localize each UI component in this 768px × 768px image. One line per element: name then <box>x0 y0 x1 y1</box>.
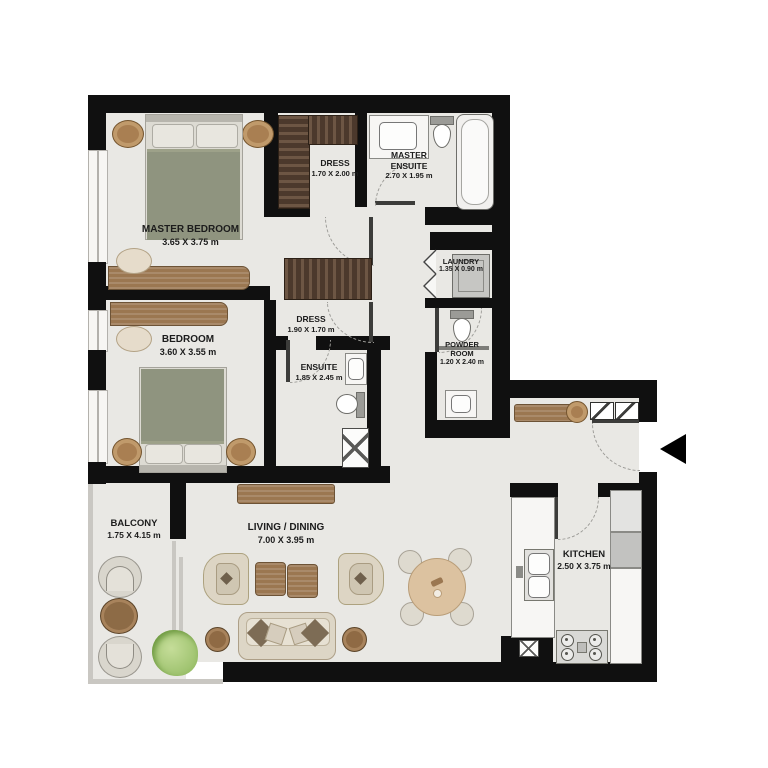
stove-knob <box>577 642 587 653</box>
wall <box>88 95 510 113</box>
balcony-glass-bottom <box>88 679 223 684</box>
nightstand <box>112 438 142 466</box>
side-table <box>342 627 367 652</box>
nightstand <box>112 120 144 148</box>
chair-back <box>106 566 134 591</box>
plant <box>152 630 198 676</box>
nightstand <box>242 120 274 148</box>
nightstand <box>226 438 256 466</box>
shower <box>342 428 369 468</box>
wall <box>264 300 276 466</box>
tv-console <box>237 484 335 504</box>
sofa <box>238 612 336 660</box>
room-label-master-ensuite: MASTER ENSUITE 2.70 X 1.95 m <box>372 150 446 181</box>
armchair <box>338 553 384 605</box>
table-decor <box>433 589 442 598</box>
hatched-cabinet <box>590 402 614 420</box>
room-label-living-dining: LIVING / DINING 7.00 X 3.95 m <box>226 522 346 546</box>
bathtub <box>456 114 494 210</box>
room-label-master-bedroom: MASTER BEDROOM 3.65 X 3.75 m <box>118 224 263 248</box>
chair-back <box>106 644 134 669</box>
fridge <box>610 490 642 532</box>
wall <box>223 662 657 682</box>
room-label-dress-2: DRESS 1.90 X 1.70 m <box>278 314 344 334</box>
balcony-chair <box>98 556 142 598</box>
window-bedroom-upper <box>88 310 108 352</box>
bathtub-inner <box>461 119 489 205</box>
balcony-glass-left <box>88 483 93 684</box>
wardrobe <box>308 115 358 145</box>
desk-chair <box>116 248 152 274</box>
hatched-cabinet <box>615 402 639 420</box>
wall <box>639 398 657 422</box>
wardrobe <box>284 258 372 300</box>
pillow <box>184 444 222 464</box>
bed-master <box>145 114 243 240</box>
armchair <box>203 553 249 605</box>
room-label-dress-1: DRESS 1.70 X 2.00 m <box>300 158 370 178</box>
balcony-chair <box>98 636 142 678</box>
wall <box>88 350 106 390</box>
floor-plan: MASTER BEDROOM 3.65 X 3.75 m DRESS 1.70 … <box>0 0 768 768</box>
desk <box>110 302 228 326</box>
room-label-kitchen: KITCHEN 2.50 X 3.75 m <box>549 549 619 572</box>
round-decor <box>566 401 588 423</box>
sink-basin <box>528 553 550 575</box>
wall <box>492 95 510 225</box>
wall <box>492 225 510 438</box>
pillow <box>196 124 238 148</box>
sink-basin <box>379 122 417 150</box>
coffee-table <box>287 564 318 598</box>
room-label-bedroom: BEDROOM 3.60 X 3.55 m <box>118 334 258 358</box>
wall <box>510 380 657 398</box>
headboard <box>140 465 226 472</box>
entry-arrow-icon <box>660 434 686 464</box>
wall <box>88 466 390 483</box>
wall <box>425 420 510 438</box>
dining-table <box>408 558 466 616</box>
balcony-table <box>100 598 138 634</box>
wall <box>510 483 558 497</box>
room-label-laundry: LAUNDRY 1.35 X 0.90 m <box>430 257 492 275</box>
wall <box>170 483 186 539</box>
coffee-table <box>255 562 286 596</box>
shaft-symbol <box>519 640 539 657</box>
side-table <box>205 627 230 652</box>
toilet-bowl <box>336 394 358 414</box>
sink-basin <box>451 395 471 413</box>
sink-basin <box>348 358 364 380</box>
bed <box>139 367 227 473</box>
room-label-ensuite: ENSUITE 1.85 X 2.45 m <box>288 362 350 382</box>
window-bedroom-lower <box>88 390 108 464</box>
wall <box>430 232 492 250</box>
wall <box>425 298 492 308</box>
sink-basin <box>528 576 550 598</box>
duvet <box>141 369 224 444</box>
stove <box>556 630 608 664</box>
room-label-balcony: BALCONY 1.75 X 4.15 m <box>96 518 172 541</box>
floor-entry-link <box>430 438 522 498</box>
wall <box>88 95 106 150</box>
table-decor <box>430 577 443 588</box>
kitchen-counter-right <box>610 568 642 664</box>
pillow <box>145 444 183 464</box>
faucet <box>516 566 523 578</box>
room-label-powder-room: POWDER ROOM 1.20 X 2.40 m <box>432 340 492 368</box>
pillow <box>152 124 194 148</box>
headboard <box>146 115 242 122</box>
wall <box>367 350 381 468</box>
window-master-bedroom <box>88 150 108 264</box>
